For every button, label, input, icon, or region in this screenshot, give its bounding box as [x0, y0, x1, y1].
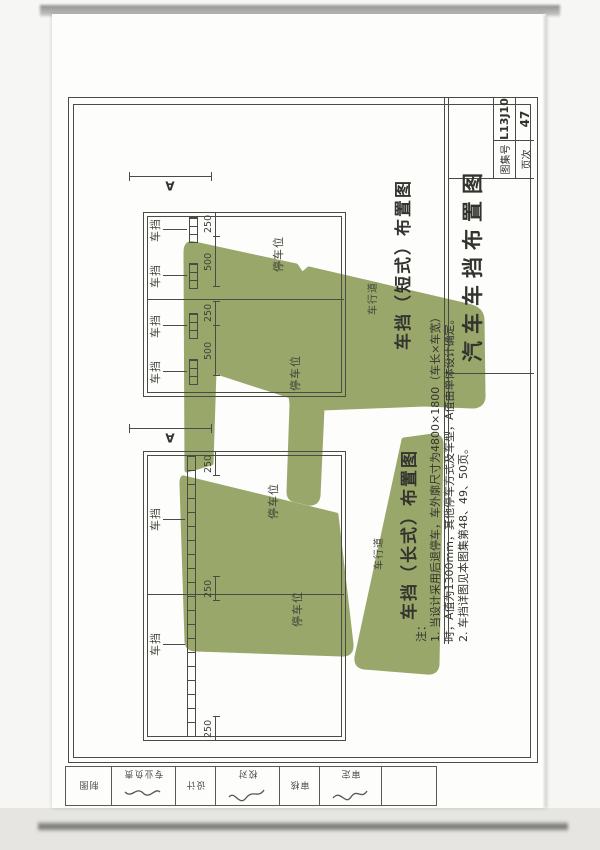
dim-a-letter: A [165, 430, 174, 444]
carstop-label: 车挡 [147, 218, 163, 242]
title-cell-left-border [448, 373, 534, 374]
dim-chain: 500 250 [215, 212, 216, 287]
stamp-cell-shending: 审定 [319, 767, 381, 805]
dim-value: 250 [203, 304, 214, 322]
carstop-block [189, 263, 198, 289]
carstop-leader [163, 371, 187, 372]
page-no-label: 页次 [516, 141, 534, 178]
carstop-leader [163, 325, 187, 326]
carstop-label: 车挡 [147, 507, 163, 531]
drawing-b-bay-divider [147, 594, 344, 595]
strip-top-line [444, 98, 445, 644]
dim-chain: 250 [215, 451, 216, 476]
drawing-sheet: 车挡 车挡 停车位 停车位 车行道 250 250 250 A 车挡（长式）布置… [68, 97, 538, 763]
carstop-block [189, 217, 198, 243]
stamp-label: 校对 [216, 767, 279, 783]
dim-value: 250 [203, 455, 214, 473]
stamp-cell-shenhe: 审核 [279, 767, 319, 805]
drawing-b-outline [143, 451, 346, 741]
dim-a-tick [129, 424, 130, 433]
stamp-label: 专业负责 [112, 767, 175, 783]
stamp-label: 审定 [320, 767, 381, 783]
stamp-label: 设计 [176, 778, 215, 794]
atlas-no-label: 图集号 [494, 141, 515, 178]
drawing-a-caption: 车挡（短式）布置图 [389, 179, 414, 350]
dim-a-tick [129, 172, 130, 181]
dim-a-tick [211, 172, 212, 181]
stamp-label: 制图 [66, 778, 111, 794]
dim-value: 250 [203, 215, 214, 233]
stamp-cell-zhuanye: 专业负责 [111, 767, 175, 805]
sheet-title: 汽车车挡布置图 [457, 166, 487, 362]
carstop-leader [163, 644, 185, 645]
page-no-value-text: 47 [518, 111, 532, 128]
dim-value: 500 [203, 342, 214, 360]
signature-scribble [320, 783, 381, 805]
dim-value: 250 [203, 720, 214, 738]
drawing-a-inner-line [147, 216, 342, 393]
strip-top-line-2 [448, 98, 449, 644]
lane-label: 车行道 [364, 282, 379, 315]
drawing-a-outline [143, 212, 346, 397]
dim-a-line [129, 176, 211, 177]
dim-value: 250 [203, 580, 214, 598]
dim-chain: 500 250 [215, 301, 216, 376]
signature-scribble [216, 783, 279, 805]
drawing-b-inner-line [147, 455, 342, 737]
carstop-label: 车挡 [147, 632, 163, 656]
carstop-leader [163, 229, 187, 230]
stamp-cell-sheji: 设计 [175, 767, 215, 805]
bay-label: 停车位 [289, 591, 305, 627]
stamp-cell-jiaodui: 校对 [215, 767, 279, 805]
dim-a-line [129, 428, 211, 429]
dim-chain: 250 [215, 716, 216, 741]
carstop-label: 车挡 [147, 264, 163, 288]
note-line-2: 时，A值为1300mm，其他停车方式及车型，A值由单体设计确定。 [443, 312, 457, 642]
signature-strip: 审定 审核 校对 设计 专业负责 制图 [65, 766, 437, 806]
note-line-1: 1. 当设计采用后退停车，车外廓尺寸为4800×1800（车长×车宽） [429, 312, 443, 642]
stamp-cell-zhitu: 制图 [66, 767, 111, 805]
carstop-block [189, 313, 198, 339]
scanned-atlas-page: { "colors": { "watermark": "#95a466", "l… [0, 0, 600, 850]
page-no-value: 47 [516, 98, 534, 140]
bay-label: 停车位 [287, 355, 303, 391]
carstop-label: 车挡 [147, 314, 163, 338]
page-no-label-text: 页次 [518, 150, 533, 170]
notes-heading: 注： [415, 312, 429, 642]
bay-label: 停车位 [265, 483, 281, 519]
dim-a-letter: A [165, 178, 174, 192]
drawing-b-long-carstop [187, 455, 196, 737]
dim-value: 500 [203, 253, 214, 271]
atlas-no-label-text: 图集号 [497, 145, 512, 175]
dim-a-tick [211, 424, 212, 433]
signature-scribble [112, 783, 175, 805]
stamp-cell-empty [381, 767, 436, 805]
atlas-no-value: L13J10 [494, 98, 515, 140]
carstop-leader [163, 275, 187, 276]
stamp-label [382, 789, 436, 805]
dim-chain: 250 [215, 576, 216, 601]
carstop-label: 车挡 [147, 360, 163, 384]
drawing-a-bay-divider [147, 299, 344, 300]
lane-label: 车行道 [370, 537, 385, 570]
carstop-leader [163, 519, 185, 520]
carstop-block [189, 359, 198, 385]
stamp-label: 审核 [280, 778, 319, 794]
atlas-no-value-text: L13J10 [498, 98, 511, 140]
bay-label: 停车位 [270, 236, 286, 272]
